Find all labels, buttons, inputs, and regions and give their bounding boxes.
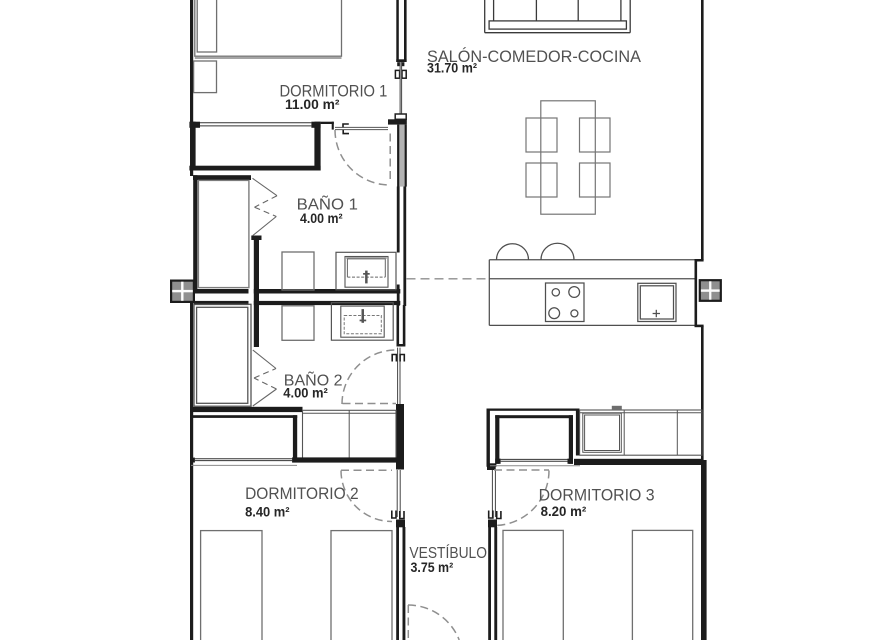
svg-text:DORMITORIO 2: DORMITORIO 2 [245, 484, 359, 503]
svg-text:8.20 m²: 8.20 m² [541, 503, 587, 519]
svg-text:31.70 m²: 31.70 m² [427, 61, 477, 76]
svg-text:4.00 m²: 4.00 m² [300, 211, 343, 226]
svg-text:8.40 m²: 8.40 m² [245, 504, 290, 520]
svg-text:DORMITORIO 3: DORMITORIO 3 [539, 486, 655, 505]
svg-text:3.75 m²: 3.75 m² [411, 560, 454, 575]
svg-text:4.00 m²: 4.00 m² [283, 386, 328, 401]
svg-text:11.00 m²: 11.00 m² [285, 97, 340, 112]
